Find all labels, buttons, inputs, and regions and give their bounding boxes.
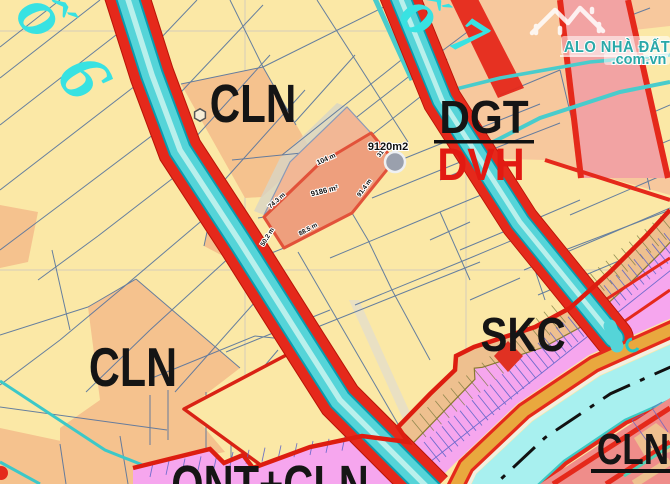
svg-text:.com.vn: .com.vn (612, 52, 667, 68)
svg-text:DGT: DGT (439, 92, 528, 143)
svg-text:CLN: CLN (89, 337, 177, 398)
svg-text:9120m2: 9120m2 (368, 141, 408, 153)
svg-text:CLN: CLN (210, 74, 297, 134)
svg-text:SKC: SKC (480, 309, 565, 362)
svg-text:ONT+CLN: ONT+CLN (171, 455, 368, 484)
svg-text:CLN: CLN (597, 425, 669, 474)
svg-text:DVH: DVH (437, 140, 524, 190)
